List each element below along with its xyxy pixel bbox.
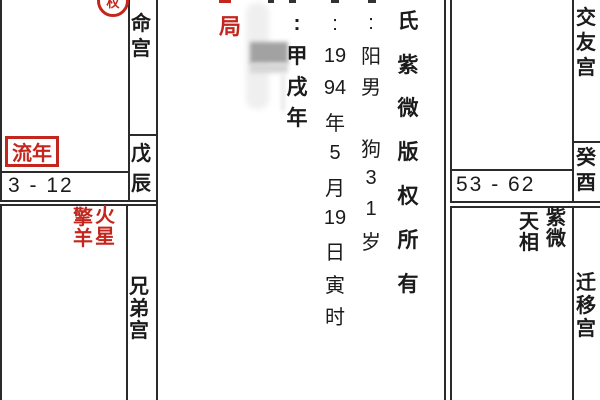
stem-branch-life: 戊辰	[130, 139, 152, 199]
date-glyph: :	[319, 8, 351, 40]
palace-box-migration: 天相 紫微 迁移宫	[450, 206, 600, 400]
gender-glyph: 1	[355, 194, 387, 225]
date-glyph: 月	[319, 170, 351, 202]
ganzhi-glyph: 甲	[284, 39, 310, 70]
ganzhi-glyph: 戌	[284, 70, 310, 101]
star-ziwei: 紫微	[545, 208, 567, 250]
ganzhi-glyph: :	[284, 8, 310, 39]
palace-name-glyph: 宫	[128, 320, 150, 342]
stem-branch-glyph: 戊	[130, 139, 152, 169]
star-glyph: 相	[518, 233, 540, 254]
palace-name-glyph: 宫	[574, 318, 598, 341]
palace-box-siblings: 擎羊 火星 兄弟宫	[0, 204, 158, 400]
flow-year-badge: 流年	[5, 136, 59, 167]
copyright-glyph: 氏	[394, 0, 422, 42]
copyright-glyph: 版	[394, 129, 422, 173]
gender-glyph: 男	[355, 70, 387, 101]
date-glyph: 寅	[319, 267, 351, 299]
palace-name-life: 命宫	[130, 12, 152, 62]
star-glyph: 紫	[545, 208, 567, 229]
date-glyph: 19	[319, 202, 351, 234]
palace-name-glyph: 宫	[130, 37, 152, 62]
stem-branch-glyph: 酉	[574, 171, 598, 196]
blur-block	[250, 42, 288, 64]
blur-block	[250, 63, 288, 73]
copyright-glyph: 紫	[394, 42, 422, 86]
cut-off-glyph-remnant	[331, 0, 339, 3]
ganzhi-year-column: :甲戌年	[284, 8, 310, 132]
copyright-glyph: 有	[394, 261, 422, 305]
copyright-column: 氏紫微版权所有	[394, 0, 422, 305]
gender-glyph: 狗	[355, 132, 387, 163]
gender-age-column: :阳男狗31岁	[355, 8, 387, 256]
palace-name-glyph: 友	[574, 31, 598, 56]
palace-name-glyph: 命	[130, 12, 152, 37]
cut-off-glyph-remnant	[368, 0, 376, 3]
strip-cell-divider	[128, 134, 156, 136]
star-glyph: 微	[545, 229, 567, 250]
palace-name-glyph: 兄	[128, 276, 150, 298]
date-glyph: 5	[319, 138, 351, 170]
palace-name-siblings: 兄弟宫	[128, 276, 150, 342]
star-tianxiang: 天相	[518, 212, 540, 254]
stem-branch-glyph: 辰	[130, 169, 152, 199]
cut-off-glyph-remnant	[289, 0, 296, 3]
strip-cell-divider	[572, 141, 600, 143]
copyright-glyph: 权	[394, 173, 422, 217]
date-glyph: 日	[319, 235, 351, 267]
date-glyph: 19	[319, 40, 351, 72]
gender-glyph: :	[355, 8, 387, 39]
ganzhi-glyph: 年	[284, 101, 310, 132]
date-glyph: 94	[319, 73, 351, 105]
birth-date-column: :1994年5月19日寅时	[319, 8, 351, 332]
palace-name-migration: 迁移宫	[574, 272, 598, 341]
ziwei-astrology-chart: 流年 3 - 12 命宫 戊辰 擎羊 火星 兄弟宫 53 - 62 交友宫 癸酉…	[0, 0, 600, 400]
palace-name-glyph: 宫	[574, 56, 598, 81]
palace-name-glyph: 交	[574, 6, 598, 31]
palace-name-glyph: 迁	[574, 272, 598, 295]
palace-name-glyph: 移	[574, 295, 598, 318]
date-glyph: 时	[319, 300, 351, 332]
copyright-glyph: 微	[394, 86, 422, 130]
palace-name-glyph: 弟	[128, 298, 150, 320]
star-glyph: 火	[93, 206, 117, 227]
life-age-range: 3 - 12	[2, 173, 128, 199]
date-glyph: 年	[319, 105, 351, 137]
star-huoxing: 火星	[93, 206, 117, 248]
center-frame-right-line	[444, 0, 446, 400]
gender-glyph	[355, 101, 387, 132]
friends-age-range: 53 - 62	[452, 171, 570, 199]
cut-off-glyph-remnant	[219, 0, 231, 3]
stem-branch-friends: 癸酉	[574, 146, 598, 196]
gender-glyph: 阳	[355, 39, 387, 70]
cut-off-glyph-remnant	[268, 0, 274, 3]
stem-branch-glyph: 癸	[574, 146, 598, 171]
star-glyph: 羊	[71, 229, 95, 250]
copyright-glyph: 所	[394, 217, 422, 261]
star-qingyang: 擎羊	[71, 208, 95, 250]
star-glyph: 天	[518, 212, 540, 233]
bureau-label: 局	[219, 9, 241, 41]
gender-glyph: 3	[355, 163, 387, 194]
palace-box-life: 流年 3 - 12 命宫 戊辰	[0, 0, 158, 202]
star-glyph: 星	[93, 227, 117, 248]
star-glyph: 擎	[71, 208, 95, 229]
palace-box-friends: 53 - 62 交友宫 癸酉	[450, 0, 600, 203]
gender-glyph: 岁	[355, 225, 387, 256]
palace-name-friends: 交友宫	[574, 6, 598, 81]
